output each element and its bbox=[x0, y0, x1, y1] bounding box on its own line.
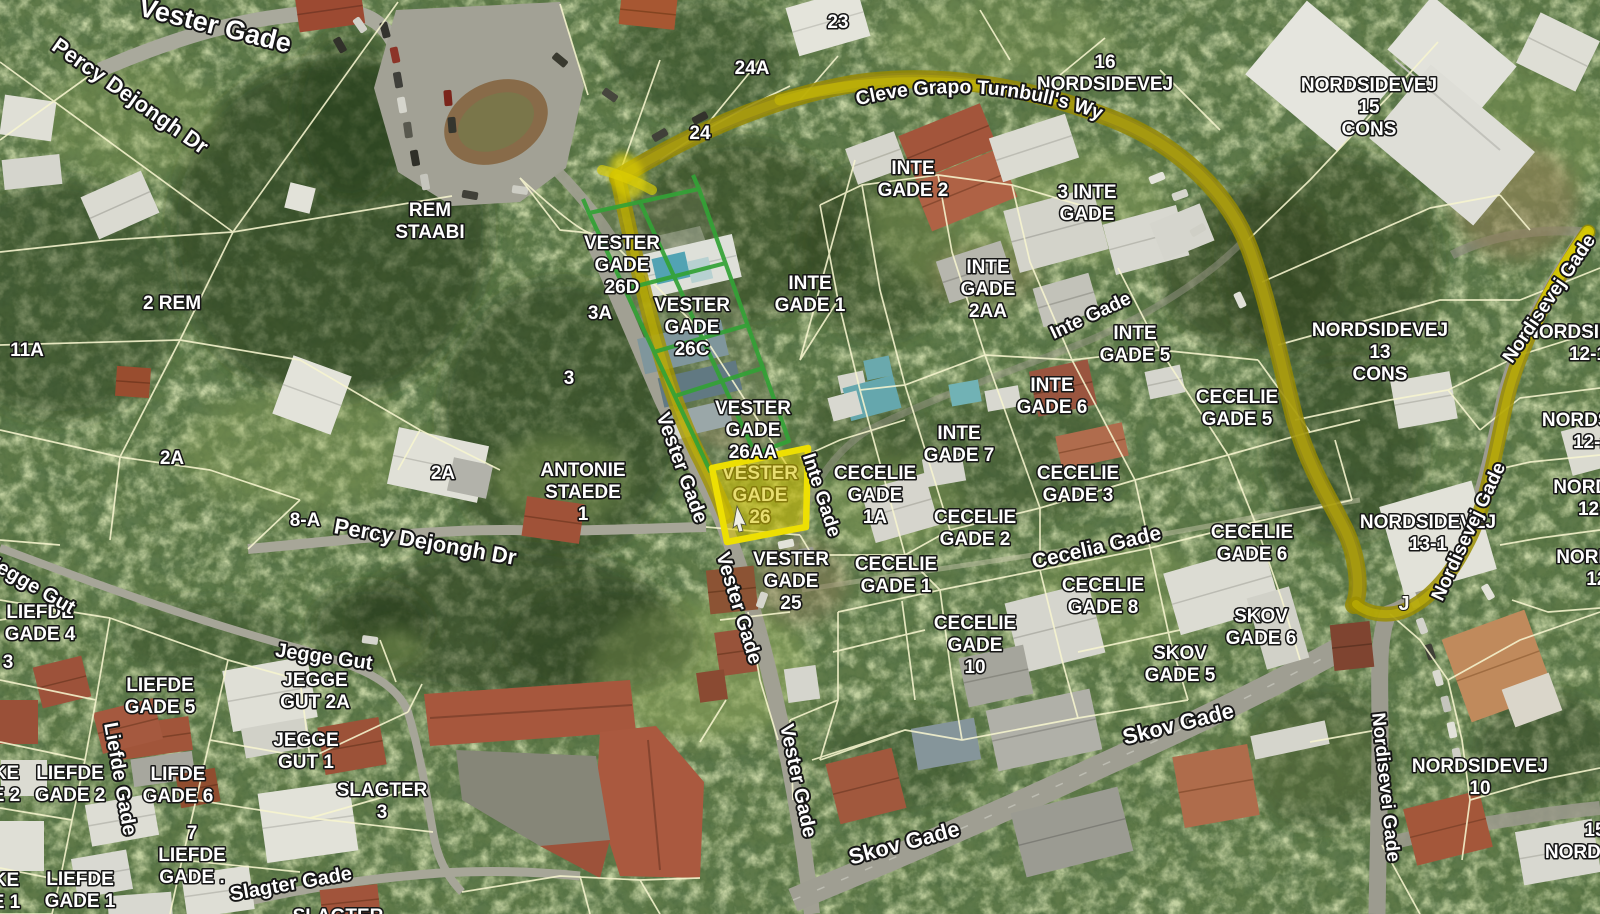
svg-text:GADE .: GADE . bbox=[159, 867, 224, 888]
svg-text:INTE: INTE bbox=[1113, 323, 1156, 344]
svg-text:10: 10 bbox=[964, 657, 985, 678]
svg-text:NORDSIDEVEJ: NORDSIDEVEJ bbox=[1301, 75, 1437, 96]
svg-text:VESTER: VESTER bbox=[654, 295, 730, 316]
svg-text:GADE 1: GADE 1 bbox=[45, 891, 116, 912]
svg-text:VESTER: VESTER bbox=[753, 549, 829, 570]
svg-text:GADE 6: GADE 6 bbox=[1217, 544, 1288, 565]
svg-text:7: 7 bbox=[187, 823, 198, 844]
svg-text:26C: 26C bbox=[675, 339, 710, 360]
svg-text:NORDSIDEVEJ: NORDSIDEVEJ bbox=[1312, 320, 1448, 341]
svg-text:NORDSIDEVEJ: NORDSIDEVEJ bbox=[1412, 756, 1548, 777]
svg-text:GADE 7: GADE 7 bbox=[924, 445, 995, 466]
svg-text:3: 3 bbox=[564, 368, 575, 389]
svg-text:CECELIE: CECELIE bbox=[1062, 575, 1144, 596]
svg-text:GADE 2: GADE 2 bbox=[940, 529, 1011, 550]
svg-text:GADE 1: GADE 1 bbox=[775, 295, 846, 316]
svg-text:GADE 8: GADE 8 bbox=[1068, 597, 1139, 618]
svg-text:24A: 24A bbox=[735, 58, 770, 79]
svg-text:E 1: E 1 bbox=[0, 892, 21, 913]
svg-text:13: 13 bbox=[1369, 342, 1390, 363]
svg-text:1A: 1A bbox=[863, 507, 888, 528]
svg-text:2 REM: 2 REM bbox=[143, 293, 201, 314]
svg-text:GADE: GADE bbox=[948, 635, 1003, 656]
svg-text:GADE 6: GADE 6 bbox=[1226, 628, 1297, 649]
svg-text:GADE: GADE bbox=[595, 255, 650, 276]
svg-text:15: 15 bbox=[1584, 820, 1600, 841]
svg-text:15: 15 bbox=[1358, 97, 1380, 118]
svg-text:2AA: 2AA bbox=[969, 301, 1007, 322]
svg-text:23: 23 bbox=[827, 12, 848, 33]
svg-text:SKOV: SKOV bbox=[1234, 606, 1288, 627]
svg-text:LIEFDE: LIEFDE bbox=[126, 675, 194, 696]
svg-text:SLAGTER: SLAGTER bbox=[337, 780, 428, 801]
svg-text:CONS: CONS bbox=[1342, 119, 1397, 140]
svg-text:12-3: 12-3 bbox=[1578, 499, 1600, 520]
svg-text:26AA: 26AA bbox=[729, 442, 778, 463]
svg-text:JEGGE: JEGGE bbox=[282, 670, 347, 691]
svg-text:ANTONIE: ANTONIE bbox=[540, 460, 625, 481]
svg-text:11A: 11A bbox=[10, 340, 44, 361]
svg-text:3: 3 bbox=[377, 802, 388, 823]
svg-text:GADE 2: GADE 2 bbox=[35, 785, 106, 806]
svg-text:E 2: E 2 bbox=[0, 785, 20, 806]
svg-text:1: 1 bbox=[578, 504, 589, 525]
svg-text:STAABI: STAABI bbox=[395, 222, 464, 243]
svg-text:LIEFDE: LIEFDE bbox=[46, 869, 114, 890]
svg-text:VESTER: VESTER bbox=[715, 398, 791, 419]
svg-text:INTE: INTE bbox=[966, 257, 1009, 278]
svg-text:GADE 5: GADE 5 bbox=[1202, 409, 1273, 430]
svg-text:CECELIE: CECELIE bbox=[855, 554, 937, 575]
svg-text:3A: 3A bbox=[588, 303, 613, 324]
svg-text:25: 25 bbox=[780, 593, 802, 614]
svg-text:24: 24 bbox=[689, 123, 711, 144]
svg-text:2A: 2A bbox=[431, 463, 456, 484]
svg-text:SKOV: SKOV bbox=[1153, 643, 1207, 664]
svg-text:3 INTE: 3 INTE bbox=[1057, 182, 1116, 203]
svg-text:CECELIE: CECELIE bbox=[834, 463, 916, 484]
svg-text:12-2: 12-2 bbox=[1573, 432, 1600, 453]
svg-text:NORDSIDE: NORDSIDE bbox=[1542, 410, 1600, 431]
svg-text:10: 10 bbox=[1469, 778, 1490, 799]
svg-text:NORDSID: NORDSID bbox=[1556, 547, 1600, 568]
svg-text:GADE 2: GADE 2 bbox=[878, 180, 949, 201]
svg-text:CECELIE: CECELIE bbox=[934, 507, 1016, 528]
svg-text:GADE: GADE bbox=[961, 279, 1016, 300]
svg-text:GADE: GADE bbox=[764, 571, 819, 592]
svg-text:CECELIE: CECELIE bbox=[1211, 522, 1293, 543]
svg-text:GADE 6: GADE 6 bbox=[1017, 397, 1088, 418]
svg-text:INTE: INTE bbox=[788, 273, 831, 294]
svg-text:STAEDE: STAEDE bbox=[545, 482, 621, 503]
svg-text:8-A: 8-A bbox=[290, 510, 321, 531]
svg-text:INTE: INTE bbox=[891, 158, 934, 179]
svg-text:LIEFDE: LIEFDE bbox=[158, 845, 226, 866]
svg-text:JEGGE: JEGGE bbox=[273, 730, 338, 751]
svg-text:GADE 5: GADE 5 bbox=[125, 697, 196, 718]
svg-text:INTE: INTE bbox=[1030, 375, 1073, 396]
svg-text:3: 3 bbox=[3, 652, 14, 673]
svg-text:12-1: 12-1 bbox=[1569, 344, 1600, 365]
svg-text:NORDSIDE: NORDSIDE bbox=[1545, 842, 1600, 863]
svg-text:VESTER: VESTER bbox=[584, 233, 660, 254]
svg-text:LIEFDE: LIEFDE bbox=[36, 763, 104, 784]
svg-text:CECELIE: CECELIE bbox=[1196, 387, 1278, 408]
svg-text:16: 16 bbox=[1094, 52, 1115, 73]
svg-text:GADE 6: GADE 6 bbox=[143, 786, 214, 807]
svg-text:CECELIE: CECELIE bbox=[1037, 463, 1119, 484]
svg-text:GADE 4: GADE 4 bbox=[5, 624, 76, 645]
svg-text:26D: 26D bbox=[605, 277, 640, 298]
svg-text:GUT 1: GUT 1 bbox=[278, 752, 334, 773]
svg-text:GADE: GADE bbox=[726, 420, 781, 441]
svg-text:GUT 2A: GUT 2A bbox=[280, 692, 350, 713]
svg-text:13-1: 13-1 bbox=[1409, 534, 1447, 555]
svg-text:2A: 2A bbox=[160, 448, 185, 469]
svg-text:LIFDE: LIFDE bbox=[151, 764, 206, 785]
svg-text:GADE: GADE bbox=[1060, 204, 1115, 225]
svg-text:SLAGTER: SLAGTER bbox=[293, 906, 384, 914]
svg-text:NORDSID: NORDSID bbox=[1553, 477, 1600, 498]
svg-text:GADE 1: GADE 1 bbox=[861, 576, 932, 597]
svg-text:CECELIE: CECELIE bbox=[934, 613, 1016, 634]
svg-text:INTE: INTE bbox=[937, 423, 980, 444]
svg-text:12-: 12- bbox=[1586, 569, 1600, 590]
svg-text:GADE 5: GADE 5 bbox=[1100, 345, 1171, 366]
svg-text:GADE 3: GADE 3 bbox=[1043, 485, 1114, 506]
svg-text:GADE 5: GADE 5 bbox=[1145, 665, 1216, 686]
svg-text:CONS: CONS bbox=[1353, 364, 1408, 385]
svg-text:REM: REM bbox=[409, 200, 451, 221]
svg-text:KE: KE bbox=[0, 870, 19, 891]
svg-text:GADE: GADE bbox=[848, 485, 903, 506]
svg-text:KE: KE bbox=[0, 763, 19, 784]
svg-text:GADE: GADE bbox=[665, 317, 720, 338]
